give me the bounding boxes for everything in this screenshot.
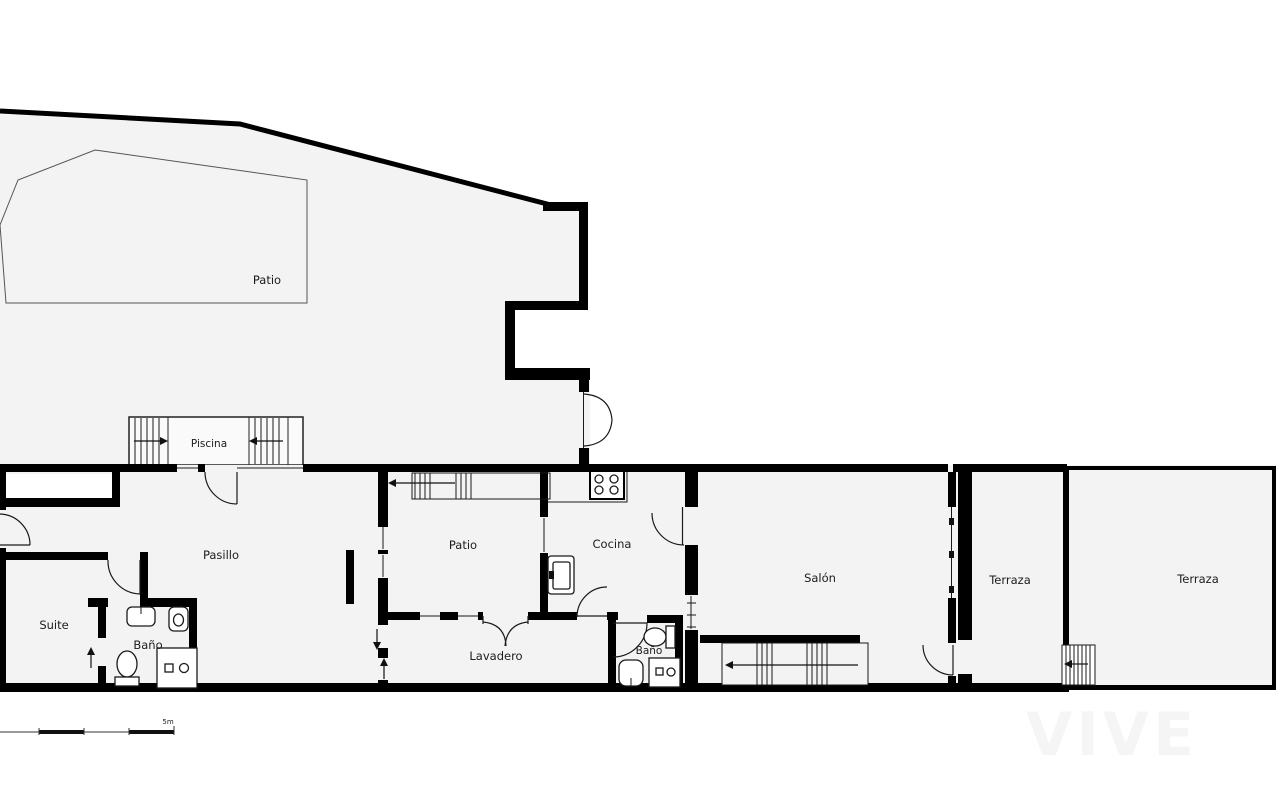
sink-icon <box>127 607 155 626</box>
stove-icon <box>590 471 624 499</box>
wall <box>505 301 588 310</box>
wall <box>505 301 515 379</box>
watermark: VIVE <box>1026 700 1198 770</box>
room-label-terraza-2: Terraza <box>1176 572 1219 586</box>
room-label-patio-top: Patio <box>253 273 281 287</box>
room-label-suite: Suite <box>39 618 68 632</box>
room-label-pasillo: Pasillo <box>203 548 239 562</box>
scale-bar: 5m <box>0 718 174 735</box>
room-label-lavadero: Lavadero <box>469 649 522 663</box>
sink-icon <box>619 660 643 686</box>
outdoor-patio-area: Patio <box>0 111 612 465</box>
stairs-icon <box>1062 645 1095 685</box>
room-label-terraza-1: Terraza <box>988 573 1031 587</box>
wall-recess <box>0 474 112 498</box>
sink-icon <box>548 556 574 594</box>
room-label-bano-1: Baño <box>133 638 162 652</box>
room-label-cocina: Cocina <box>593 537 632 551</box>
floorplan-svg: Patio <box>0 0 1280 800</box>
piscina: Piscina <box>129 417 303 465</box>
floorplan-image: Patio <box>0 0 1280 800</box>
double-door-icon <box>579 380 612 465</box>
shower-icon <box>649 658 680 687</box>
shower-icon <box>157 648 197 688</box>
outdoor-floor <box>0 114 590 465</box>
stairs-icon <box>722 643 868 685</box>
room-label-piscina: Piscina <box>191 438 227 450</box>
scale-label: 5m <box>162 718 173 726</box>
wall <box>505 368 590 380</box>
wall <box>579 202 588 310</box>
room-label-salon: Salón <box>804 571 836 585</box>
bidet-icon <box>169 607 188 631</box>
room-label-bano-2: Baño <box>636 645 663 657</box>
room-label-patio-interior: Patio <box>449 538 477 552</box>
toilet-icon <box>115 651 139 686</box>
